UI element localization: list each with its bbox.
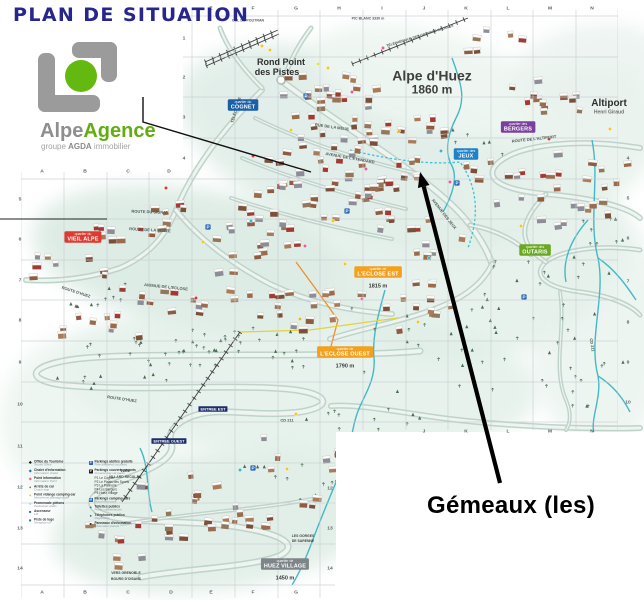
building xyxy=(280,92,288,99)
building xyxy=(35,253,41,260)
building-body xyxy=(401,297,407,302)
building xyxy=(427,296,435,303)
building xyxy=(85,254,93,262)
legend-texts: AscenseurLift xyxy=(34,510,51,517)
building-roof xyxy=(317,97,326,100)
building-body xyxy=(267,189,274,193)
building-roof xyxy=(115,311,121,314)
building xyxy=(254,190,263,198)
poi-dot xyxy=(350,90,353,93)
building xyxy=(428,281,437,288)
place-label: des Pistes xyxy=(255,67,300,78)
building-body xyxy=(317,106,325,111)
building-roof xyxy=(570,201,578,204)
legend-texts: Chalet d'informationInformation chalet xyxy=(34,468,65,475)
building-roof xyxy=(518,194,524,197)
building-roof xyxy=(260,240,269,243)
building-body xyxy=(525,100,531,106)
building xyxy=(139,291,146,299)
building xyxy=(340,135,348,143)
building xyxy=(167,308,177,315)
legend-icon: P xyxy=(89,468,94,473)
building xyxy=(325,185,335,191)
grid-label: 1 xyxy=(183,35,186,41)
legend-parking-entry: P5 Huez Village xyxy=(95,492,145,496)
place-label: Altiport xyxy=(591,97,627,109)
place-label: Henri Giraud xyxy=(594,109,624,115)
building-roof xyxy=(537,194,544,197)
grid-label: 7 xyxy=(627,278,630,284)
building-roof xyxy=(32,263,41,266)
building xyxy=(221,521,230,529)
building xyxy=(230,296,239,303)
building xyxy=(188,472,194,479)
building-roof xyxy=(428,281,436,284)
grid-label: D xyxy=(169,589,173,595)
legend-texts: Point vidange camping-carMotorhome drain… xyxy=(34,493,76,500)
legend-texts: Toilettes publicsPublic conveniences xyxy=(95,505,122,512)
legend-texts: Téléphones publicsPayphones xyxy=(95,513,125,520)
building xyxy=(464,48,473,54)
building-roof xyxy=(279,183,286,186)
poi-dot xyxy=(260,44,263,47)
building xyxy=(214,268,224,277)
building xyxy=(331,179,339,187)
building xyxy=(426,123,435,130)
building-roof xyxy=(151,205,160,208)
building-body xyxy=(560,95,568,100)
grid-label: 10 xyxy=(625,399,631,405)
legend-label-en: Information Point xyxy=(34,480,61,483)
building-body xyxy=(385,122,391,126)
quartier-elevation: 1815 m xyxy=(369,283,388,289)
grid-label: L xyxy=(506,5,509,11)
legend-label-en: Lift xyxy=(34,513,51,516)
poi-dot xyxy=(289,128,292,131)
building xyxy=(201,301,209,308)
building-roof xyxy=(335,90,341,93)
legend-item: ■AscenseurLift xyxy=(28,510,84,517)
building-roof xyxy=(364,103,371,106)
building-roof xyxy=(268,466,275,469)
building-roof xyxy=(369,184,378,187)
building xyxy=(364,121,372,128)
poi-dot xyxy=(439,149,442,152)
building-roof xyxy=(400,294,406,297)
building-roof xyxy=(463,161,469,164)
building-body xyxy=(323,167,329,172)
building xyxy=(277,310,283,317)
building-roof xyxy=(75,313,81,316)
building-roof xyxy=(365,95,372,98)
building-roof xyxy=(326,91,333,94)
grid-label: 8 xyxy=(627,319,630,325)
building-body xyxy=(589,204,596,209)
grid-label: 10 xyxy=(17,401,23,407)
tree xyxy=(90,303,93,307)
quartier-badge-outaris: quartier desOUTARIS xyxy=(519,244,550,256)
building xyxy=(430,115,436,123)
building xyxy=(352,115,358,122)
legend-item: ■Piste de lugeSledging run xyxy=(28,518,84,525)
building xyxy=(553,185,560,192)
grid-label: 12 xyxy=(17,484,23,490)
building-body xyxy=(113,556,121,561)
building xyxy=(212,482,222,490)
quartier-badge-huez-village: quartier deHUEZ VILLAGE xyxy=(261,558,309,570)
building-body xyxy=(311,304,318,309)
building xyxy=(245,515,254,522)
building xyxy=(236,509,243,517)
building xyxy=(208,524,217,531)
grid-label: F xyxy=(251,589,254,595)
plan-de-situation-page: PPPPPP PLAN DE SITUATION AlpeAgence grou… xyxy=(0,0,644,600)
building-roof xyxy=(604,210,611,213)
place-label: DE SARENNE xyxy=(292,539,314,543)
building xyxy=(599,198,608,205)
building-body xyxy=(308,115,314,120)
grid-label: L xyxy=(506,428,509,434)
building-roof xyxy=(222,516,229,519)
building-roof xyxy=(556,170,562,173)
building-roof xyxy=(428,307,435,310)
building xyxy=(473,47,481,54)
building-body xyxy=(385,181,393,186)
poi-dot xyxy=(194,296,197,299)
building-roof xyxy=(553,150,563,153)
building-roof xyxy=(180,205,186,208)
building-roof xyxy=(277,310,283,313)
building xyxy=(114,562,123,570)
building-roof xyxy=(317,157,323,160)
building-roof xyxy=(426,123,435,126)
building xyxy=(576,107,582,114)
grid-label: M xyxy=(548,5,552,11)
building-body xyxy=(58,333,66,339)
parking-letter: P xyxy=(206,225,209,230)
grid-label: K xyxy=(464,428,468,434)
building-roof xyxy=(313,495,323,498)
building-roof xyxy=(108,236,116,239)
building-roof xyxy=(58,331,67,334)
building-body xyxy=(383,306,390,311)
legend-label-en: Tourist Office xyxy=(34,464,63,467)
building xyxy=(135,332,143,340)
building-roof xyxy=(229,269,238,272)
building xyxy=(315,86,323,92)
building-roof xyxy=(536,216,546,219)
building xyxy=(305,316,314,324)
legend-item: ●Arrêts de carCoach stop xyxy=(28,485,84,492)
building xyxy=(114,311,120,318)
building xyxy=(322,290,329,297)
building-roof xyxy=(236,509,243,512)
building xyxy=(228,252,237,259)
building-roof xyxy=(315,86,323,89)
building-roof xyxy=(45,254,52,257)
building-roof xyxy=(427,296,435,299)
building-roof xyxy=(518,35,526,38)
building-roof xyxy=(599,198,608,201)
building xyxy=(388,216,394,223)
building-body xyxy=(306,319,314,325)
building-roof xyxy=(353,84,361,87)
building xyxy=(247,291,253,298)
building-roof xyxy=(35,253,41,256)
building xyxy=(294,241,302,247)
building xyxy=(317,97,326,104)
building xyxy=(413,249,420,256)
building-roof xyxy=(52,260,58,263)
grid-label: C xyxy=(126,589,130,595)
building-roof xyxy=(246,209,254,212)
building xyxy=(238,203,247,211)
legend-icon: ● xyxy=(28,485,33,490)
legend-item: MParkings camping-carsMotorhome park xyxy=(89,497,145,504)
quartier-badge-name: JEUX xyxy=(457,153,475,159)
building xyxy=(540,108,547,115)
building-roof xyxy=(119,285,126,288)
building xyxy=(290,322,298,329)
building-roof xyxy=(401,173,408,176)
quartier-badge-bergers: quartier desBERGERS xyxy=(501,121,535,133)
poi-dot xyxy=(298,317,301,320)
building xyxy=(372,85,381,93)
building-roof xyxy=(540,108,547,111)
building-body xyxy=(519,197,524,201)
building-roof xyxy=(323,165,329,168)
poi-dot xyxy=(164,186,167,189)
building-roof xyxy=(247,291,253,294)
legend-label-en: Payphones xyxy=(95,517,125,520)
building xyxy=(322,165,328,172)
legend-icon-box: P xyxy=(89,461,93,465)
quartier-badge-name: HUEZ VILLAGE xyxy=(264,563,306,569)
grid-label: 7 xyxy=(19,277,22,283)
legend-label-en: Coach stop xyxy=(34,488,54,491)
grid-label: G xyxy=(294,589,298,595)
building xyxy=(369,138,378,146)
building-roof xyxy=(310,301,317,304)
building-roof xyxy=(179,534,189,537)
building-roof xyxy=(396,160,402,163)
grid-label: 4 xyxy=(183,155,186,161)
building-roof xyxy=(530,92,537,95)
building xyxy=(194,490,201,498)
place-label: Alpe d'Huez xyxy=(392,68,472,84)
building-roof xyxy=(309,291,317,294)
building-roof xyxy=(293,181,302,184)
building-roof xyxy=(414,155,421,158)
legend-label-en: Motorhome park xyxy=(95,500,131,503)
building-body xyxy=(180,207,186,212)
building-roof xyxy=(270,209,279,212)
legend-icon: P xyxy=(89,460,94,465)
building-body xyxy=(229,229,235,234)
building xyxy=(509,84,516,90)
building-roof xyxy=(267,230,275,233)
building xyxy=(539,100,546,107)
building-roof xyxy=(29,273,38,276)
legend-icon: ■ xyxy=(28,510,33,515)
building-roof xyxy=(408,137,417,140)
building xyxy=(331,143,338,150)
building-roof xyxy=(117,536,124,539)
legend-item: ●Toilettes publicsPublic conveniences xyxy=(89,505,145,512)
building-roof xyxy=(255,215,263,218)
building-body xyxy=(165,526,173,531)
grid-label: 13 xyxy=(327,525,333,531)
poi-dot xyxy=(397,129,400,132)
quartier-badge-name: VIEIL ALPE xyxy=(67,236,98,242)
building-roof xyxy=(524,97,530,100)
building-roof xyxy=(388,216,394,219)
building xyxy=(89,318,97,326)
building-roof xyxy=(413,303,419,306)
building-roof xyxy=(321,214,327,217)
building-roof xyxy=(383,304,390,307)
building xyxy=(383,304,390,311)
building-roof xyxy=(334,300,340,303)
building xyxy=(298,326,308,333)
grid-label: 2 xyxy=(183,74,186,80)
tree xyxy=(97,304,100,307)
poi-dot xyxy=(249,219,252,222)
legend-column-right: PParkings abrités gratuitsFree sheltered… xyxy=(89,460,145,528)
building xyxy=(226,287,236,295)
building xyxy=(282,149,292,156)
building-roof xyxy=(385,120,392,123)
building-body xyxy=(614,181,620,186)
building-body xyxy=(426,125,434,129)
building xyxy=(317,157,324,164)
tree xyxy=(69,302,72,306)
building-roof xyxy=(238,203,247,206)
building-body xyxy=(267,232,274,236)
grid-label: B xyxy=(83,589,87,595)
building-roof xyxy=(409,158,415,161)
building xyxy=(427,307,435,314)
grid-label: 14 xyxy=(17,565,23,571)
building-roof xyxy=(493,199,500,202)
building xyxy=(396,326,404,334)
building-body xyxy=(540,102,546,106)
quartier-badge-jeux: quartier desJEUX xyxy=(454,148,478,160)
quartier-badge-name: L'ECLOSE EST xyxy=(357,271,398,277)
building-roof xyxy=(313,148,320,151)
grid-label: G xyxy=(294,5,298,11)
building xyxy=(335,90,341,97)
building-body xyxy=(342,98,348,102)
building xyxy=(365,95,372,103)
legend-texts: Parkings camping-carsMotorhome park xyxy=(95,497,131,504)
building-roof xyxy=(352,115,358,118)
building xyxy=(108,236,116,243)
building xyxy=(518,35,527,42)
building xyxy=(309,291,317,298)
building xyxy=(75,313,82,320)
building xyxy=(58,331,67,339)
building xyxy=(116,236,126,243)
building-roof xyxy=(113,554,121,557)
building xyxy=(106,227,115,235)
building-roof xyxy=(377,180,384,183)
building-roof xyxy=(298,134,305,137)
building-roof xyxy=(381,127,390,130)
building-roof xyxy=(266,514,273,517)
building-body xyxy=(32,265,41,269)
building-roof xyxy=(413,249,419,252)
building xyxy=(298,72,307,80)
building-roof xyxy=(107,227,116,230)
building-roof xyxy=(487,158,494,161)
direction-label: VERS GRENOBLE xyxy=(111,571,140,575)
building xyxy=(52,260,58,267)
legend-label-en: Sledging run xyxy=(34,521,54,524)
building-roof xyxy=(228,227,235,230)
building xyxy=(353,84,361,92)
building xyxy=(267,187,275,194)
building-roof xyxy=(275,292,285,295)
legend-item: ◆Office du TourismeTourist Office xyxy=(28,460,84,467)
building-roof xyxy=(308,112,315,115)
building-roof xyxy=(329,314,336,317)
building-roof xyxy=(331,143,338,146)
building xyxy=(357,291,366,297)
building xyxy=(530,92,537,99)
building xyxy=(146,299,154,306)
building-body xyxy=(370,186,379,191)
poi-dot xyxy=(326,66,329,69)
building xyxy=(313,148,321,156)
grid-label: 13 xyxy=(17,525,23,531)
building-roof xyxy=(332,215,340,218)
building xyxy=(179,534,189,541)
grid-label: 11 xyxy=(17,443,22,449)
parking-letter: P xyxy=(522,295,525,300)
building xyxy=(365,191,372,198)
building xyxy=(293,181,302,188)
building-roof xyxy=(560,93,568,96)
poi-dot xyxy=(294,412,297,415)
legend-texts: Parkings abrités gratuitsFree sheltered … xyxy=(95,460,133,467)
building-roof xyxy=(298,326,308,329)
building-roof xyxy=(546,172,556,175)
building xyxy=(98,530,105,538)
building xyxy=(302,200,312,208)
building xyxy=(470,166,478,174)
building-roof xyxy=(430,115,436,118)
building-roof xyxy=(351,122,357,125)
building-roof xyxy=(213,235,222,238)
grid-label: 5 xyxy=(19,196,22,202)
building xyxy=(270,209,279,217)
building-roof xyxy=(257,312,264,315)
building-body xyxy=(332,97,341,102)
building-body xyxy=(537,197,544,202)
logo-wordmark: AlpeAgence xyxy=(40,120,156,143)
legend-label-en: Free sheltered car parks xyxy=(95,464,133,467)
building xyxy=(396,160,402,168)
legend-icon-box: M xyxy=(89,498,93,502)
quartier-badge-name: BERGERS xyxy=(504,126,532,132)
building-roof xyxy=(505,172,514,175)
legend-item: PParkings abrités gratuitsFree sheltered… xyxy=(89,460,145,467)
building xyxy=(505,172,514,179)
page-title: PLAN DE SITUATION xyxy=(13,4,249,26)
building xyxy=(291,112,300,119)
poi-dot xyxy=(285,467,288,470)
